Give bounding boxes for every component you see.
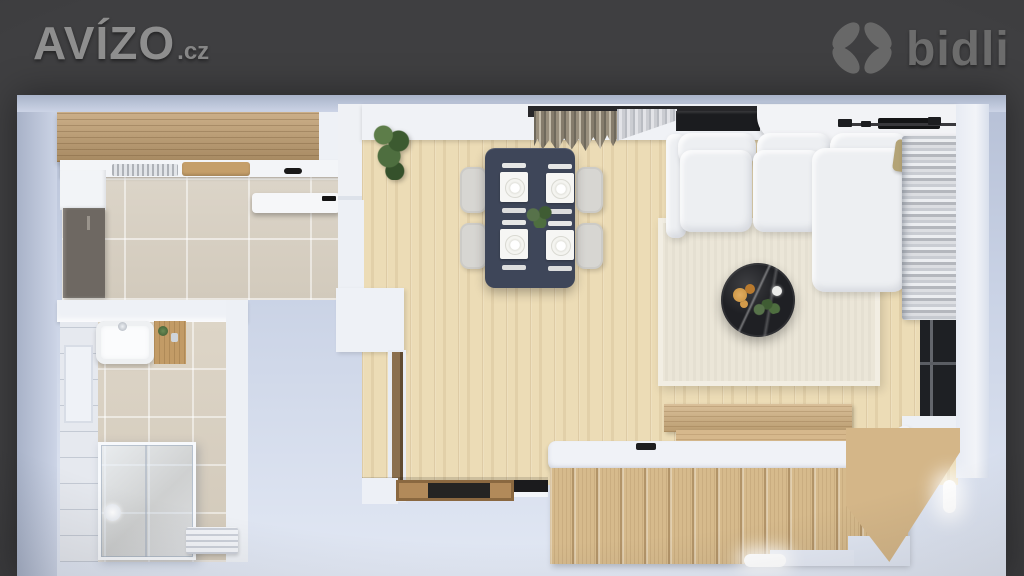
kitchen-east-wall — [338, 104, 364, 200]
dining-chair — [460, 167, 487, 213]
cutting-board — [182, 162, 250, 176]
avizo-logo-text: AVÍZO — [33, 20, 175, 66]
kitchen-counter-left — [60, 170, 106, 210]
dining-chair — [576, 223, 603, 269]
floor-light — [744, 554, 786, 567]
fridge — [63, 208, 105, 298]
kitchen-door-open — [252, 193, 340, 213]
dining-chair — [460, 223, 487, 269]
floorplan-render: AVÍZO .cz bidli — [0, 0, 1024, 576]
potted-plant — [372, 120, 410, 180]
shower-enclosure — [98, 442, 196, 560]
curtain-east — [902, 136, 960, 320]
dish-rack — [112, 164, 178, 176]
speaker — [838, 119, 852, 127]
bidli-clover-icon — [830, 20, 896, 78]
decor-candle — [772, 286, 782, 296]
soundbar — [842, 123, 960, 126]
place-setting — [500, 172, 528, 202]
sink-faucet — [118, 322, 127, 331]
railing-handle — [636, 443, 656, 450]
speaker — [928, 117, 941, 125]
wall-block — [336, 288, 404, 352]
wall-light — [943, 480, 956, 513]
place-setting — [500, 229, 528, 259]
avizo-logo: AVÍZO .cz — [33, 14, 209, 66]
bath-mat — [186, 527, 238, 554]
bathroom-top-wall — [57, 300, 248, 322]
sofa-chaise — [812, 148, 906, 292]
avizo-logo-tld: .cz — [177, 40, 209, 66]
place-setting — [546, 230, 574, 260]
window-east — [920, 320, 960, 420]
window-top — [676, 111, 760, 131]
coffee-table — [721, 263, 795, 337]
sofa-seat-cushion — [680, 150, 752, 232]
bidli-logo-text: bidli — [906, 22, 1010, 77]
speaker — [861, 121, 871, 127]
stair-top-step — [664, 404, 852, 432]
decor-bowl — [733, 288, 747, 302]
kitchen-faucet — [284, 168, 302, 174]
stair-railing — [548, 441, 880, 470]
doormat — [428, 483, 490, 498]
vanity-soap — [171, 333, 178, 342]
east-wall — [956, 104, 989, 478]
dining-chair — [576, 167, 603, 213]
corner-wall — [362, 478, 398, 504]
sofa-seat-cushion — [753, 150, 821, 232]
wall-left — [17, 95, 57, 576]
table-centerpiece-plant — [523, 206, 557, 228]
kitchen-cabinets — [57, 112, 319, 162]
bathroom-niche — [64, 345, 93, 423]
place-setting — [546, 173, 574, 203]
vanity-plant — [158, 326, 168, 336]
bathroom-right-wall — [226, 300, 248, 562]
shower-head — [104, 504, 121, 521]
entry-door-slot — [514, 480, 548, 492]
entry-door-sill — [514, 492, 548, 497]
bidli-logo: bidli — [830, 18, 1010, 80]
living-west-wall — [338, 200, 364, 292]
